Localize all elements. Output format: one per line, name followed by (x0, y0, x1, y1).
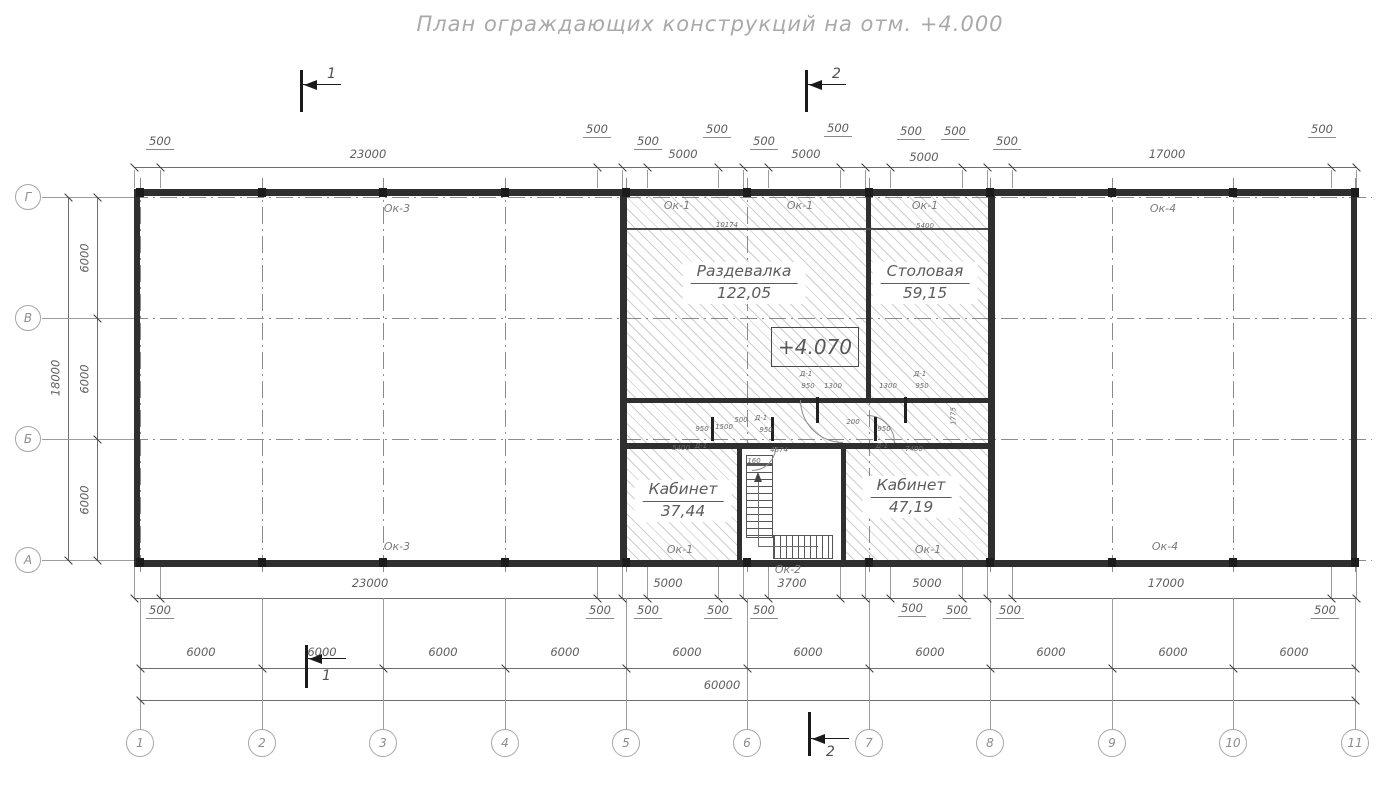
column-mark (865, 188, 873, 197)
room-label: Раздевалка122,05 (683, 262, 806, 304)
extension-line (768, 567, 769, 598)
grid-axis-column (383, 178, 384, 575)
extension-line (622, 170, 623, 188)
extension-line (597, 567, 598, 598)
window-mark-label: Ок-3 (384, 203, 410, 214)
axis-extension-line (1112, 598, 1113, 729)
dim-label: 60000 (704, 680, 741, 692)
dim-label: 500 (824, 123, 852, 137)
dim-label: 6000 (1036, 647, 1065, 659)
room-area: 37,44 (643, 502, 724, 521)
column-mark (1108, 188, 1116, 197)
section-marker-arrow (304, 80, 317, 90)
dim-label: 500 (146, 605, 174, 619)
column-mark (501, 558, 509, 567)
axis-extension-line (1355, 598, 1356, 729)
extension-line (865, 170, 866, 188)
column-mark (379, 188, 387, 197)
dim-label: 5000 (912, 578, 941, 590)
grid-axis-column (140, 178, 141, 575)
axis-extension-line (262, 598, 263, 729)
dim-label: 5000 (791, 149, 820, 161)
extension-line (962, 567, 963, 598)
dim-label: 500 (634, 605, 662, 619)
tiny-dim-label: 950 (801, 383, 814, 390)
room-area: 47,19 (871, 498, 952, 517)
column-mark (1351, 188, 1359, 197)
extension-line (840, 170, 841, 188)
window-mark-label: Ок-3 (384, 541, 410, 552)
section-marker-arrow (812, 734, 825, 744)
column-mark (1351, 558, 1359, 567)
column-mark (743, 558, 751, 567)
tiny-dim-label: 200 (846, 419, 859, 426)
tiny-dim-label: 7400 (905, 446, 923, 453)
extension-line (962, 170, 963, 188)
tiny-dim-label: 5400 (672, 445, 690, 452)
axis-extension-line (140, 598, 141, 729)
section-marker-bar (805, 70, 808, 112)
dim-label: 6000 (915, 647, 944, 659)
extension-line (622, 567, 623, 598)
dim-label: 500 (898, 603, 926, 617)
section-marker-label: 1 (327, 66, 336, 82)
extension-line (890, 170, 891, 188)
grid-bubble-row: Г (15, 184, 41, 210)
axis-extension-line (42, 439, 134, 440)
dim-label: 500 (634, 136, 662, 150)
grid-bubble-column: 6 (733, 729, 761, 757)
extension-line (134, 567, 135, 598)
axis-extension-line (42, 197, 134, 198)
grid-bubble-column: 1 (126, 729, 154, 757)
room-name: Столовая (881, 263, 970, 284)
dim-label: 500 (704, 605, 732, 619)
extension-line (134, 170, 135, 188)
dim-label: 6000 (428, 647, 457, 659)
grid-bubble-column: 9 (1098, 729, 1126, 757)
room-label: Кабинет47,19 (863, 476, 960, 518)
extension-line (768, 170, 769, 188)
section-marker-label: 2 (832, 66, 841, 82)
section-marker-bar (808, 712, 811, 756)
section-marker-arrow (809, 80, 822, 90)
dim-label: 17000 (1149, 149, 1186, 161)
axis-extension-line (1233, 598, 1234, 729)
room-area: 122,05 (691, 284, 798, 303)
tiny-dim-label: Д-1 (695, 443, 707, 450)
wall (841, 447, 846, 562)
column-mark (501, 188, 509, 197)
dim-label: 6000 (79, 243, 91, 272)
extension-line (743, 170, 744, 188)
dim-label: 6000 (1158, 647, 1187, 659)
extension-line (1356, 170, 1357, 188)
room-name: Раздевалка (691, 263, 798, 284)
column-mark (258, 558, 266, 567)
dim-label: 23000 (350, 149, 387, 161)
stair-arrow-head (754, 472, 762, 482)
window-mark-label: Ок-1 (912, 200, 938, 211)
dim-label: 500 (750, 136, 778, 150)
grid-bubble-row: А (15, 547, 41, 573)
axis-extension-line (505, 598, 506, 729)
grid-axis-column (1112, 178, 1113, 575)
tiny-dim-label: 1300 (824, 383, 842, 390)
dim-label: 500 (750, 605, 778, 619)
extension-line (160, 567, 161, 598)
dim-label: 18000 (50, 360, 62, 397)
extension-line (987, 170, 988, 188)
dim-label: 6000 (793, 647, 822, 659)
grid-bubble-row: Б (15, 426, 41, 452)
tiny-dim-label: 5400 (916, 223, 934, 230)
tiny-dim-label: 160 (747, 458, 760, 465)
door-leaf (904, 397, 907, 423)
axis-extension-line (42, 318, 134, 319)
door-leaf (816, 397, 819, 423)
dim-label: 6000 (186, 647, 215, 659)
dim-label: 500 (941, 126, 969, 140)
tiny-dim-label: Д-1 (914, 371, 926, 378)
wall (988, 189, 995, 567)
grid-axis-column (1233, 178, 1234, 575)
extension-line (160, 170, 161, 188)
dim-label: 500 (996, 605, 1024, 619)
grid-bubble-column: 4 (491, 729, 519, 757)
dim-label: 3700 (777, 578, 806, 590)
grid-axis-column (505, 178, 506, 575)
dim-label: 500 (1308, 124, 1336, 138)
dim-label: 6000 (672, 647, 701, 659)
dim-label: 23000 (352, 578, 389, 590)
axis-extension-line (990, 598, 991, 729)
wall (737, 447, 742, 562)
stair-arrow-line (758, 480, 759, 547)
window-mark-label: Ок-4 (1152, 541, 1178, 552)
extension-line (865, 567, 866, 598)
column-mark (986, 188, 994, 197)
column-mark (865, 558, 873, 567)
tiny-dim-label: Д-1 (800, 371, 812, 378)
extension-line (1356, 567, 1357, 598)
tiny-dim-label: 950 (915, 383, 928, 390)
extension-line (743, 567, 744, 598)
grid-bubble-row: В (15, 305, 41, 331)
window-mark-label: Ок-1 (787, 200, 813, 211)
extension-line (1331, 170, 1332, 188)
window-mark-label: Ок-1 (915, 544, 941, 555)
extension-line (987, 567, 988, 598)
column-mark (258, 188, 266, 197)
stair-arrow-tail (758, 546, 818, 547)
tiny-dim-label: 1300 (879, 383, 897, 390)
tiny-dim-label: 500 (734, 417, 747, 424)
dim-label: 500 (897, 126, 925, 140)
wall (134, 189, 140, 567)
wall (620, 189, 627, 567)
axis-extension-line (626, 598, 627, 729)
room-label: Столовая59,15 (873, 262, 978, 304)
axis-extension-line (869, 598, 870, 729)
section-marker-bar (305, 645, 308, 688)
dim-label: 6000 (550, 647, 579, 659)
dim-label: 500 (583, 124, 611, 138)
column-mark (743, 188, 751, 197)
dim-line-left-total (68, 197, 69, 560)
dim-label: 6000 (1279, 647, 1308, 659)
window-mark-label: Ок-1 (667, 544, 693, 555)
dim-label: 6000 (79, 485, 91, 514)
tiny-dim-label: 4674 (770, 447, 788, 454)
column-mark (136, 188, 144, 197)
dim-label: 5000 (909, 152, 938, 164)
extension-line (718, 567, 719, 598)
column-mark (1229, 188, 1237, 197)
window-mark-label: Ок-1 (664, 200, 690, 211)
grid-bubble-column: 5 (612, 729, 640, 757)
section-marker-label: 1 (322, 668, 331, 684)
dim-label: 5000 (653, 578, 682, 590)
grid-bubble-column: 8 (976, 729, 1004, 757)
wall (1351, 189, 1357, 567)
tiny-dim-label: 950 (759, 427, 772, 434)
room-name: Кабинет (643, 481, 724, 502)
grid-axis-column (262, 178, 263, 575)
tiny-dim-label: 950 (695, 426, 708, 433)
grid-bubble-column: 10 (1219, 729, 1247, 757)
axis-extension-line (383, 598, 384, 729)
stair-flight-lower (773, 535, 833, 559)
extension-line (647, 567, 648, 598)
tiny-dim-label: 1500 (715, 424, 733, 431)
dim-label: 500 (1311, 605, 1339, 619)
column-mark (1229, 558, 1237, 567)
dim-label: 500 (146, 136, 174, 150)
column-mark (379, 558, 387, 567)
tiny-dim-label: Д-1 (876, 443, 888, 450)
room-area: 59,15 (881, 284, 970, 303)
tiny-dim-label: 950 (877, 426, 890, 433)
column-mark (986, 558, 994, 567)
extension-line (1012, 170, 1013, 188)
extension-line (718, 170, 719, 188)
extension-line (647, 170, 648, 188)
dim-label: 5000 (668, 149, 697, 161)
axis-extension-line (42, 560, 134, 561)
grid-bubble-column: 11 (1341, 729, 1369, 757)
drawing-layer: 5002300050050050005005005000500500500050… (0, 0, 1400, 788)
tiny-dim-label: 10174 (716, 222, 738, 229)
extension-line (840, 567, 841, 598)
extension-line (1331, 567, 1332, 598)
dim-label: 500 (703, 124, 731, 138)
column-mark (1108, 558, 1116, 567)
grid-bubble-column: 2 (248, 729, 276, 757)
section-marker-label: 2 (826, 744, 835, 760)
extension-line (1012, 567, 1013, 598)
extension-line (597, 170, 598, 188)
extension-line (890, 567, 891, 598)
grid-bubble-column: 7 (855, 729, 883, 757)
column-mark (622, 188, 630, 197)
column-mark (136, 558, 144, 567)
dim-label: 500 (943, 605, 971, 619)
dim-label: 6000 (79, 364, 91, 393)
window-mark-label: Ок-2 (775, 564, 801, 575)
grid-bubble-column: 3 (369, 729, 397, 757)
room-name: Кабинет (871, 477, 952, 498)
door-leaf (711, 417, 714, 441)
axis-extension-line (747, 598, 748, 729)
column-mark (622, 558, 630, 567)
wall (866, 194, 871, 401)
tiny-dim-label: Д-1 (755, 415, 767, 422)
dim-label: 500 (993, 136, 1021, 150)
section-marker-bar (300, 70, 303, 112)
dim-label: 500 (586, 605, 614, 619)
window-mark-label: Ок-4 (1150, 203, 1176, 214)
dim-line-left-bays (97, 197, 98, 560)
section-marker-arrow (309, 654, 322, 664)
dim-label: 17000 (1148, 578, 1185, 590)
tiny-dim-label: 1775 (951, 407, 958, 425)
floor-plan-sheet: План ограждающих конструкций на отм. +4.… (0, 0, 1400, 788)
room-label: Кабинет37,44 (635, 480, 732, 522)
